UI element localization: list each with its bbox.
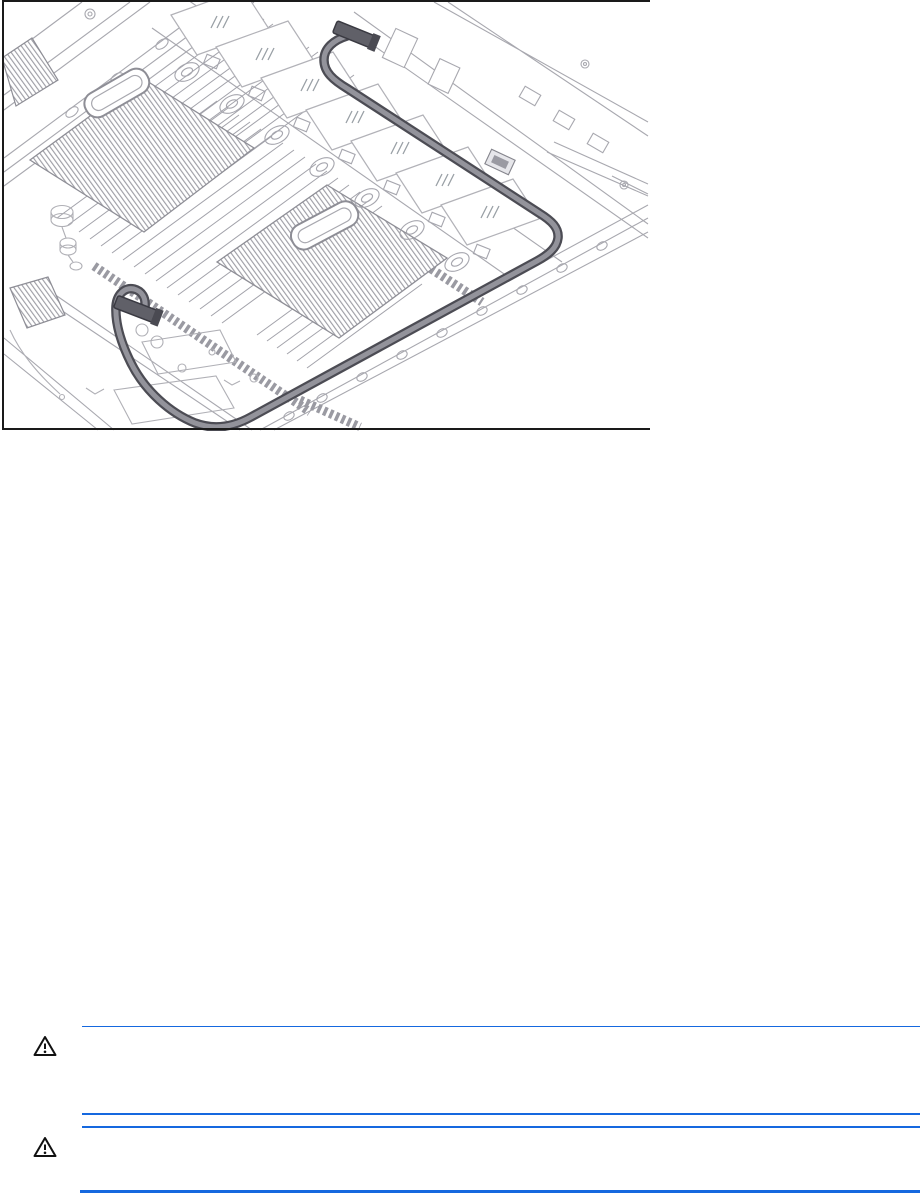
notice-2-bottom-rule [80, 1190, 920, 1193]
notice-1-bottom-rule [82, 1113, 920, 1115]
notice-2-text [82, 1140, 920, 1184]
warning-triangle-icon [33, 1035, 57, 1057]
server-line-art-illustration [2, 0, 650, 431]
cable-connector-rear [332, 19, 381, 52]
notice-1-text [82, 1040, 920, 1104]
notice-2-top-rule [82, 1126, 920, 1128]
notice-1-top-rule [82, 1026, 920, 1027]
warning-triangle-icon [33, 1136, 57, 1158]
cable-routing-figure [2, 0, 650, 431]
